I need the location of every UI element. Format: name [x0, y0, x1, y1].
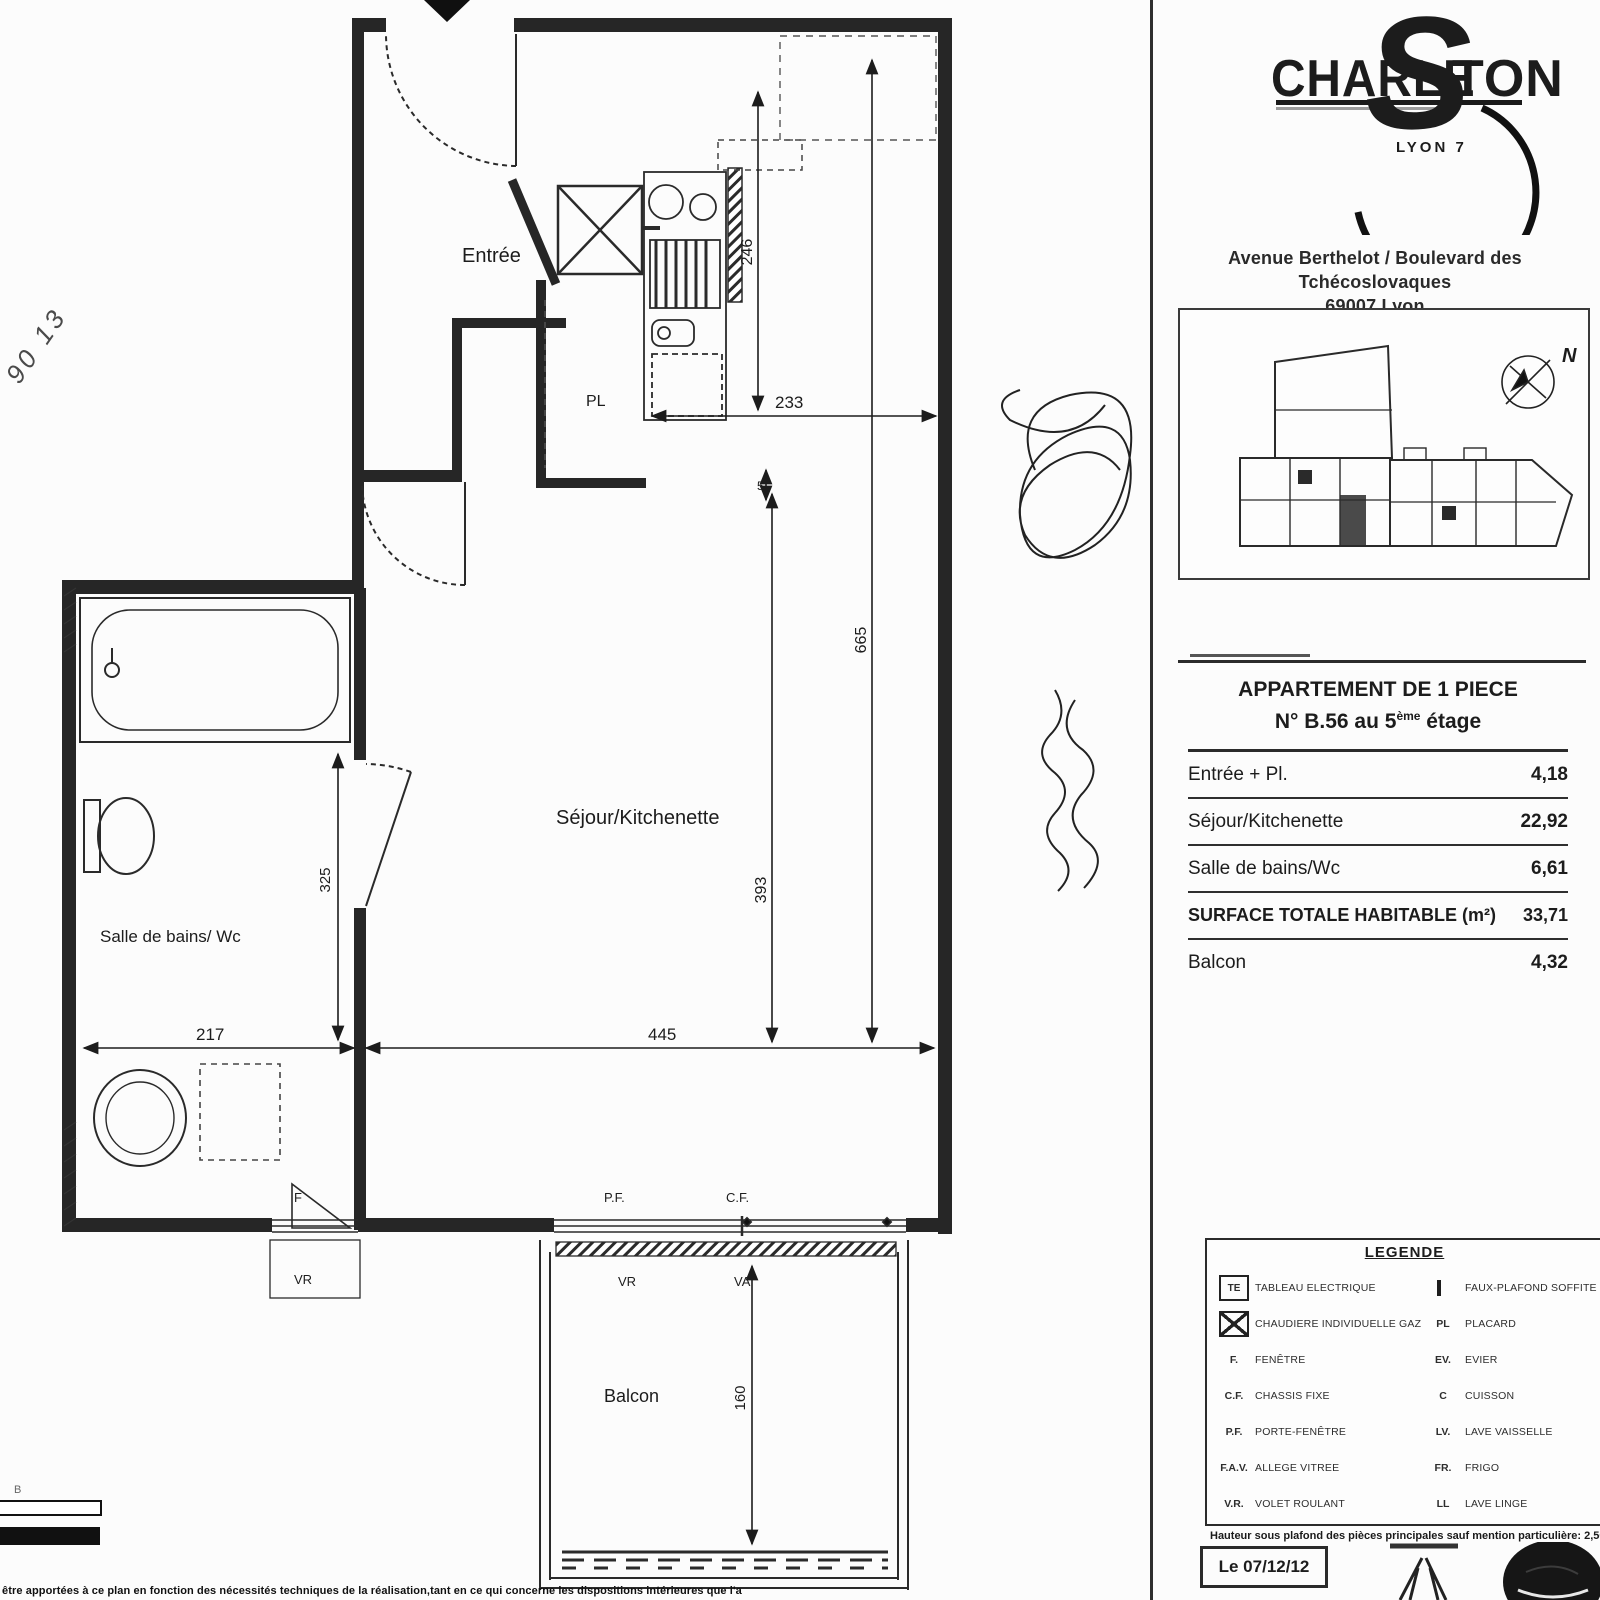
legend-row: F. FENÊTRE EV. EVIER — [1213, 1342, 1599, 1378]
tag-f: F — [294, 1190, 302, 1205]
legend-label: FRIGO — [1465, 1462, 1499, 1474]
toilet — [84, 798, 154, 874]
scale-label: B — [14, 1484, 21, 1496]
scale-bar — [0, 1500, 102, 1516]
balcony — [540, 1240, 908, 1590]
room-label-balcon: Balcon — [604, 1386, 659, 1406]
boiler-x-icon — [1219, 1311, 1249, 1337]
legend-key: C.F. — [1213, 1390, 1255, 1402]
compass-icon — [1502, 356, 1554, 408]
table-row: Entrée + Pl. 4,18 — [1188, 752, 1568, 799]
legend-label: LAVE LINGE — [1465, 1498, 1528, 1510]
entrance-arrow-icon — [424, 0, 470, 22]
dim-393: 393 — [753, 877, 770, 904]
stamp — [1498, 1542, 1600, 1600]
row-label: Salle de bains/Wc — [1188, 858, 1340, 880]
ceiling-height-note: Hauteur sous plafond des pièces principa… — [1210, 1530, 1600, 1542]
room-label-sejour: Séjour/Kitchenette — [556, 807, 719, 829]
area-table: APPARTEMENT DE 1 PIECE N° B.56 au 5ème é… — [1188, 676, 1568, 985]
legend-title: LEGENDE — [1207, 1244, 1600, 1261]
legend-label: PORTE-FENÊTRE — [1255, 1426, 1421, 1438]
legend-row: F.A.V. ALLEGE VITREE FR. FRIGO — [1213, 1450, 1599, 1486]
tag-va: VA — [734, 1274, 751, 1289]
rule — [1178, 660, 1586, 663]
legend-box: LEGENDE TE TABLEAU ELECTRIQUE FAUX-PLAFO… — [1205, 1238, 1600, 1526]
sink-icon — [690, 194, 716, 220]
legend-label: VOLET ROULANT — [1255, 1498, 1421, 1510]
architect-mark — [1380, 1542, 1470, 1600]
address-line1: Avenue Berthelot / Boulevard des Tchécos… — [1165, 246, 1585, 294]
exterior-walls — [62, 18, 952, 1234]
row-label: SURFACE TOTALE HABITABLE (m²) — [1188, 905, 1496, 926]
dim-5: 5 — [757, 479, 764, 493]
row-label: Balcon — [1188, 952, 1246, 974]
logo-s: S — [1365, 0, 1472, 162]
legend-row: CHAUDIERE INDIVIDUELLE GAZ PL PLACARD — [1213, 1306, 1599, 1342]
diagonal-wall — [512, 180, 556, 284]
kitchen-counter — [644, 172, 726, 420]
legend-key: LV. — [1421, 1426, 1465, 1438]
legend-row: C.F. CHASSIS FIXE C CUISSON — [1213, 1378, 1599, 1414]
legend-label: FENÊTRE — [1255, 1354, 1421, 1366]
dimension-lines — [84, 60, 936, 1544]
north-label: N — [1562, 345, 1577, 367]
legend-label: LAVE VAISSELLE — [1465, 1426, 1553, 1438]
hood-dashed — [718, 140, 802, 170]
table-title-line2: N° B.56 au 5ème étage — [1188, 703, 1568, 735]
dim-233: 233 — [775, 393, 803, 412]
legend-row: V.R. VOLET ROULANT LL LAVE LINGE — [1213, 1486, 1599, 1522]
legend-label: CUISSON — [1465, 1390, 1514, 1402]
logo-subtitle: LYON 7 — [1396, 139, 1467, 156]
legend-label: TABLEAU ELECTRIQUE — [1255, 1282, 1421, 1294]
main-window — [554, 1216, 906, 1236]
legend-key: C — [1421, 1390, 1465, 1402]
faux-plafond-zone — [780, 36, 936, 140]
panel-divider — [1150, 0, 1153, 1600]
row-value: 33,71 — [1523, 905, 1568, 926]
table-title-line1: APPARTEMENT DE 1 PIECE — [1188, 676, 1568, 703]
row-value: 6,61 — [1531, 858, 1568, 880]
floor-plan-sheet: 233 246 665 393 445 217 325 160 5 Entrée… — [0, 0, 1600, 1600]
dim-665: 665 — [853, 627, 870, 654]
table-row: Balcon 4,32 — [1188, 940, 1568, 985]
legend-label: PLACARD — [1465, 1318, 1516, 1330]
room-label-bain: Salle de bains/ Wc — [100, 927, 241, 946]
legend-label: ALLEGE VITREE — [1255, 1462, 1421, 1474]
vent-shaft — [728, 168, 742, 302]
tag-cf: C.F. — [726, 1190, 749, 1205]
dim-445: 445 — [648, 1025, 676, 1044]
date-box: Le 07/12/12 — [1200, 1546, 1328, 1588]
legend-label: EVIER — [1465, 1354, 1498, 1366]
tag-vr2: VR — [618, 1274, 636, 1289]
legend-key: P.F. — [1213, 1426, 1255, 1438]
site-plan-box: N — [1178, 308, 1590, 580]
dim-325: 325 — [317, 867, 334, 892]
entrance-door — [386, 34, 516, 166]
disclaimer-text: être apportées à ce plan en fonction des… — [2, 1585, 742, 1597]
bathtub — [80, 598, 350, 742]
scale-bar — [0, 1527, 100, 1545]
room-label-entree: Entrée — [462, 245, 521, 267]
floor-plan-drawing: 233 246 665 393 445 217 325 160 5 Entrée… — [0, 0, 1150, 1600]
dim-246: 246 — [739, 239, 756, 266]
charleston-logo: CHARLE TON S LYON 7 — [1190, 0, 1600, 235]
table-row-total: SURFACE TOTALE HABITABLE (m²) 33,71 — [1188, 893, 1568, 940]
row-label: Séjour/Kitchenette — [1188, 811, 1343, 833]
table-row: Salle de bains/Wc 6,61 — [1188, 846, 1568, 893]
legend-key: F.A.V. — [1213, 1462, 1255, 1474]
washbasin — [94, 1070, 186, 1166]
table-row: Séjour/Kitchenette 22,92 — [1188, 799, 1568, 846]
washing-machine-dashed — [200, 1064, 280, 1160]
sink-icon — [649, 185, 683, 219]
highlighted-unit — [1340, 495, 1366, 546]
row-value: 22,92 — [1520, 811, 1568, 833]
living-room-door — [362, 482, 465, 585]
tag-vr1: VR — [294, 1272, 312, 1287]
legend-row: P.F. PORTE-FENÊTRE LV. LAVE VAISSELLE — [1213, 1414, 1599, 1450]
legend-label: CHASSIS FIXE — [1255, 1390, 1421, 1402]
legend-label: FAUX-PLAFOND SOFFITE — [1465, 1282, 1597, 1294]
bathroom-door — [366, 764, 411, 906]
legend-key: F. — [1213, 1354, 1255, 1366]
legend-row: TE TABLEAU ELECTRIQUE FAUX-PLAFOND SOFFI… — [1213, 1270, 1599, 1306]
bath-window — [270, 1184, 360, 1298]
dim-160: 160 — [732, 1385, 749, 1410]
row-value: 4,32 — [1531, 952, 1568, 974]
legend-key: V.R. — [1213, 1498, 1255, 1510]
site-plan-drawing: N — [1180, 310, 1584, 574]
rule — [1190, 654, 1310, 657]
legend-key: PL — [1421, 1318, 1465, 1330]
row-label: Entrée + Pl. — [1188, 764, 1288, 786]
handwritten-scribble — [1002, 390, 1131, 891]
legend-key: EV. — [1421, 1354, 1465, 1366]
room-label-pl: PL — [586, 393, 606, 410]
te-box-icon: TE — [1219, 1275, 1249, 1301]
tag-pf: P.F. — [604, 1190, 625, 1205]
row-value: 4,18 — [1531, 764, 1568, 786]
hatch-swatch-icon — [1437, 1280, 1441, 1296]
legend-key: FR. — [1421, 1462, 1465, 1474]
legend-label: CHAUDIERE INDIVIDUELLE GAZ — [1255, 1318, 1421, 1330]
legend-key: LL — [1421, 1498, 1465, 1510]
dim-217: 217 — [196, 1025, 224, 1044]
